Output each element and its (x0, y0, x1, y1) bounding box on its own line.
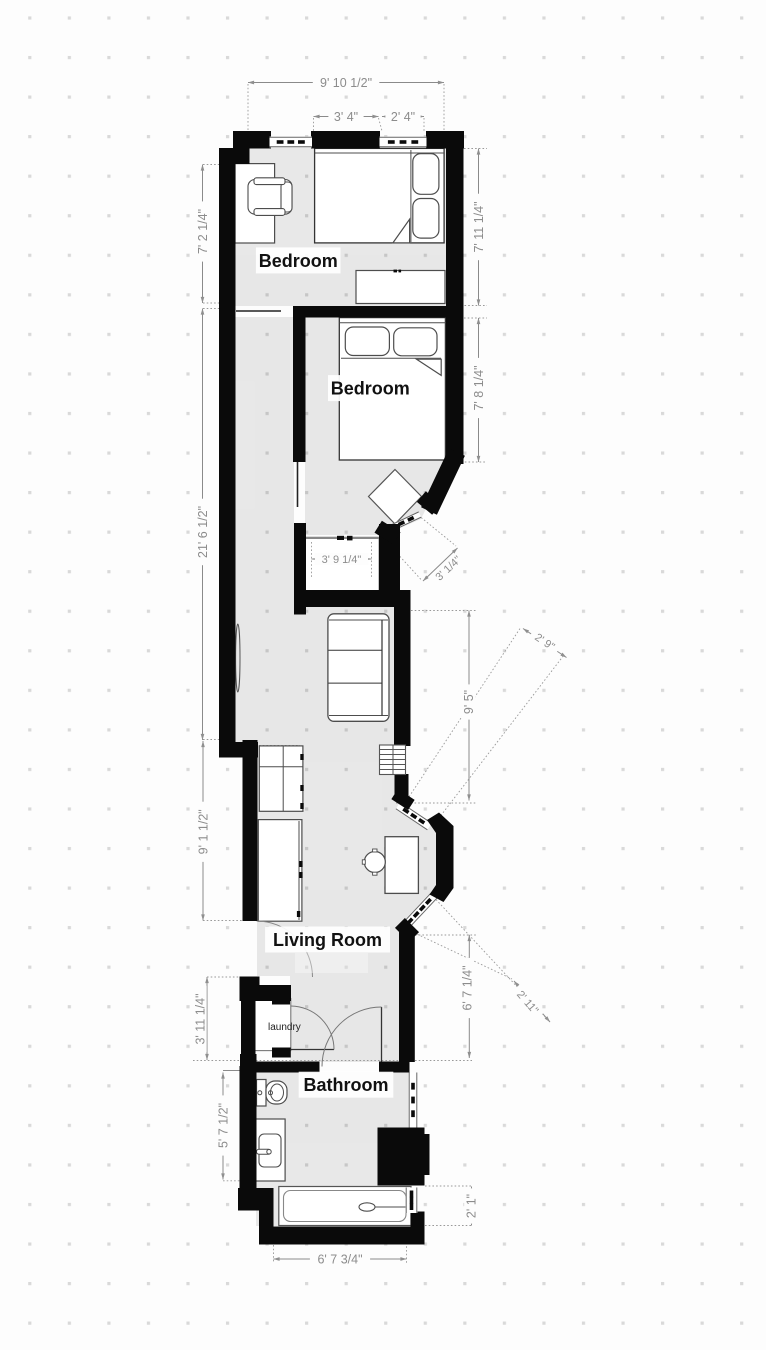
svg-text:9' 5": 9' 5" (462, 690, 476, 714)
svg-text:6' 7 1/4": 6' 7 1/4" (461, 965, 475, 1010)
svg-text:Bathroom: Bathroom (304, 1075, 389, 1095)
svg-text:21' 6 1/2": 21' 6 1/2" (196, 506, 210, 558)
svg-text:Bedroom: Bedroom (259, 251, 338, 271)
svg-text:7' 2 1/4": 7' 2 1/4" (196, 209, 210, 254)
svg-text:3' 11 1/4": 3' 11 1/4" (194, 993, 208, 1044)
svg-text:Bedroom: Bedroom (331, 379, 410, 399)
svg-text:7' 8 1/4": 7' 8 1/4" (472, 365, 486, 410)
svg-text:3' 9 1/4": 3' 9 1/4" (322, 554, 362, 566)
svg-text:2' 1": 2' 1" (465, 1194, 479, 1218)
svg-text:9' 1 1/2": 9' 1 1/2" (197, 809, 211, 854)
svg-text:3' 4": 3' 4" (334, 110, 358, 124)
svg-text:9' 10 1/2": 9' 10 1/2" (320, 76, 372, 90)
svg-text:laundry: laundry (268, 1022, 301, 1033)
svg-text:5' 7 1/2": 5' 7 1/2" (217, 1103, 231, 1148)
svg-text:7' 11 1/4": 7' 11 1/4" (472, 201, 486, 252)
svg-text:Living Room: Living Room (273, 930, 382, 950)
svg-text:2' 4": 2' 4" (391, 110, 415, 124)
svg-text:6' 7 3/4": 6' 7 3/4" (317, 1253, 362, 1267)
